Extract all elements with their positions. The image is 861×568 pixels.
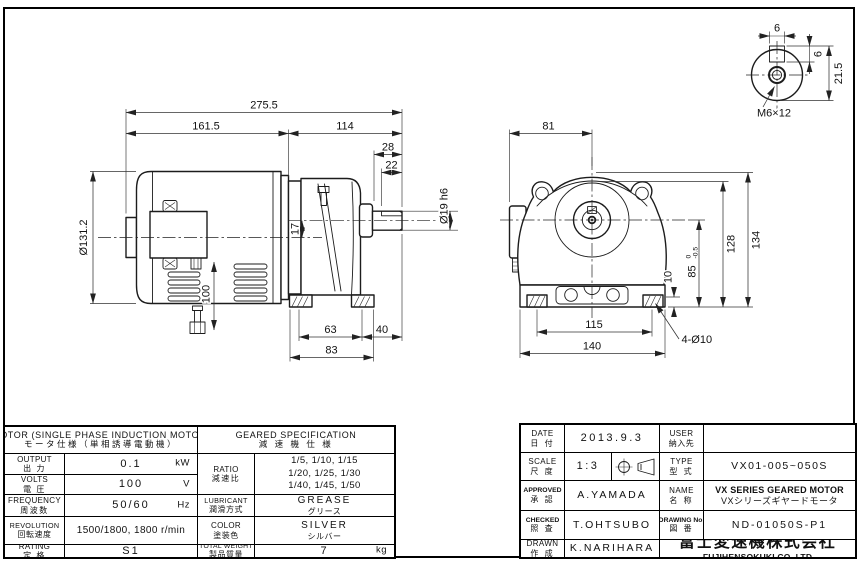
dim-base-length: 83 [325, 345, 337, 357]
checked-label: CHECKED 照 査 [521, 510, 564, 539]
approved-label-en: APPROVED [523, 487, 561, 495]
date-label-en: DATE [531, 429, 553, 438]
color-value-en: SILVER [301, 520, 348, 532]
spec-label-revolution: REVOLUTION 回転速度 [5, 516, 64, 544]
projection-symbol-cell [611, 452, 659, 480]
drawn-value: K.NARIHARA [570, 542, 654, 554]
dim-key-top: 21.5 [833, 63, 845, 84]
output-value: 0.1 [120, 458, 141, 471]
third-angle-projection-icon [614, 455, 658, 479]
drawing-no-value: ND-01050S-P1 [732, 519, 827, 531]
volts-unit: V [183, 479, 190, 490]
frequency-unit: Hz [177, 500, 190, 511]
lubricant-label-en: LUBRICANT [204, 497, 247, 505]
geared-spec-header: GEARED SPECIFICATION 減 速 機 仕 様 [197, 427, 394, 453]
gearbox-outline [290, 179, 375, 308]
user-label: USER 納入先 [659, 425, 703, 452]
spec-label-color: COLOR 塗装色 [197, 516, 254, 544]
motor-spec-header: MOTOR (SINGLE PHASE INDUCTION MOTOR) モータ… [5, 427, 197, 453]
spec-label-lubricant: LUBRICANT 潤滑方式 [197, 494, 254, 516]
company-name-jp: 富士変速機株式会社 [679, 539, 837, 553]
rating-label-en: RATING [19, 544, 50, 551]
drawing-no-value-cell: ND-01050S-P1 [703, 510, 855, 539]
revolution-label-en: REVOLUTION [10, 522, 60, 530]
dim-shaft-height: 85 [687, 265, 699, 277]
dim-key-height: 6 [813, 51, 825, 57]
spec-value-frequency: 50/60 Hz [64, 494, 197, 516]
dim-foot-pitch-side: 63 [324, 324, 336, 336]
dim-motor-dia: Ø131.2 [78, 219, 90, 255]
dim-tap-hole: M6×12 [757, 108, 791, 120]
dim-shaft-dia: Ø19 h6 [439, 188, 451, 224]
checked-value: T.OHTSUBO [573, 519, 651, 531]
spec-table: MOTOR (SINGLE PHASE INDUCTION MOTOR) モータ… [3, 425, 396, 559]
spec-label-output: OUTPUT 出 力 [5, 453, 64, 474]
dim-mount-holes: 4-Ø10 [682, 334, 713, 346]
side-view: 275.5 161.5 114 28 22 Ø131.2 Ø19 h6 17 1… [78, 100, 458, 362]
name-label: NAME 名 称 [659, 480, 703, 510]
spec-value-weight: 7 kg [254, 544, 394, 557]
dim-shaft-height-tol-lower: -0.5 [693, 247, 700, 259]
spec-label-ratio: RATIO 減速比 [197, 453, 254, 494]
scale-label-en: SCALE [528, 457, 556, 466]
spec-value-lubricant: GREASE グリース [254, 494, 394, 516]
ratio-line-2: 1/20, 1/25, 1/30 [288, 468, 360, 481]
lubricant-value-en: GREASE [298, 495, 352, 507]
name-value-cell: VX SERIES GEARED MOTOR VXシリーズギヤードモータ [703, 480, 855, 510]
revolution-label-jp: 回転速度 [18, 530, 52, 539]
output-label-en: OUTPUT [17, 455, 52, 464]
spec-value-output: 0.1 kW [64, 453, 197, 474]
date-label: DATE 日 付 [521, 425, 564, 452]
ratio-line-3: 1/40, 1/45, 1/50 [288, 480, 360, 493]
type-label-en: TYPE [670, 457, 693, 466]
name-label-en: NAME [669, 486, 694, 495]
name-label-jp: 名 称 [669, 496, 693, 505]
dim-overall-height: 134 [751, 231, 763, 249]
color-value-jp: シルバー [308, 532, 342, 541]
output-label-jp: 出 力 [23, 464, 46, 473]
spec-label-volts: VOLTS 電 圧 [5, 474, 64, 494]
approved-label: APPROVED 承 認 [521, 480, 564, 510]
rating-value: S1 [122, 545, 139, 557]
checked-value-cell: T.OHTSUBO [564, 510, 659, 539]
dim-body-height: 128 [726, 235, 738, 253]
company-name-en: FUJIHENSOKUKI CO.,LTD [703, 553, 812, 557]
spec-label-rating: RATING 定 格 [5, 544, 64, 557]
date-label-jp: 日 付 [530, 439, 554, 448]
scale-label: SCALE 尺 度 [521, 452, 564, 480]
dim-box-to-center: 81 [542, 121, 554, 133]
frequency-label-jp: 周波数 [20, 506, 49, 515]
lubricant-value-jp: グリース [308, 507, 342, 516]
date-value: 2013.9.3 [581, 432, 644, 445]
output-unit: kW [175, 459, 190, 470]
dim-overall-length: 275.5 [250, 100, 278, 112]
frequency-value: 50/60 [112, 499, 150, 512]
dim-gearbox-length: 114 [336, 121, 354, 133]
approved-label-jp: 承 認 [530, 495, 554, 504]
checked-label-jp: 照 査 [530, 524, 554, 533]
front-view: 81 134 128 85 0 -0.5 10 115 140 4-Ø10 [500, 121, 763, 359]
dim-motor-length: 161.5 [192, 121, 220, 133]
type-value: VX01-005~050S [731, 460, 828, 472]
motor-spec-title-jp: モータ仕様（単相誘導電動機） [24, 440, 178, 450]
approved-value-cell: A.YAMADA [564, 480, 659, 510]
ratio-line-1: 1/5, 1/10, 1/15 [291, 455, 358, 468]
spec-label-frequency: FREQUENCY 周波数 [5, 494, 64, 516]
dim-pad-height: 10 [663, 271, 675, 283]
weight-label-jp: 製品質量 [209, 550, 243, 557]
drawing-no-label: DRAWING No. 図 番 [659, 510, 703, 539]
drawing-no-label-jp: 図 番 [669, 524, 693, 533]
spec-value-rating: S1 [64, 544, 197, 557]
type-value-cell: VX01-005~050S [703, 452, 855, 480]
title-block: DATE 日 付 2013.9.3 USER 納入先 SCALE 尺 度 1:3 [519, 423, 857, 559]
name-value-en: VX SERIES GEARED MOTOR [715, 485, 844, 495]
company-cell: 富士変速機株式会社 FUJIHENSOKUKI CO.,LTD [659, 539, 855, 557]
dim-lead-length: 100 [201, 285, 213, 303]
dim-foot-pitch-front: 115 [585, 319, 603, 331]
dim-axis-offset: 17 [290, 223, 302, 235]
revolution-value: 1500/1800, 1800 r/min [77, 525, 185, 537]
volts-label-jp: 電 圧 [23, 485, 46, 494]
type-label: TYPE 型 式 [659, 452, 703, 480]
volts-label-en: VOLTS [21, 475, 48, 484]
drawn-label: DRAWN 作 成 [521, 539, 564, 557]
user-value-cell [703, 425, 855, 452]
approved-value: A.YAMADA [577, 489, 646, 501]
dim-key-width: 6 [774, 23, 780, 35]
earth-bolt [190, 306, 205, 334]
shaft-detail-view: 6 6 21.5 M6×12 [746, 23, 845, 120]
mounting-base [520, 285, 665, 307]
spec-value-color: SILVER シルバー [254, 516, 394, 544]
user-label-jp: 納入先 [669, 439, 695, 448]
color-label-en: COLOR [211, 521, 241, 530]
geared-spec-title-jp: 減 速 機 仕 様 [259, 440, 333, 450]
ratio-label-en: RATIO [213, 465, 238, 474]
ratio-label-jp: 減速比 [212, 474, 241, 483]
user-label-en: USER [670, 429, 694, 438]
dim-foot-to-shaft-end: 40 [376, 324, 388, 336]
dim-shaft-height-tol-upper: 0 [686, 255, 693, 259]
frequency-label-en: FREQUENCY [8, 496, 61, 505]
dim-shaft-height-group: 85 0 -0.5 [686, 247, 700, 278]
dim-base-width: 140 [583, 341, 601, 353]
date-value-cell: 2013.9.3 [564, 425, 659, 452]
spec-value-revolution: 1500/1800, 1800 r/min [64, 516, 197, 544]
drawing-sheet: 275.5 161.5 114 28 22 Ø131.2 Ø19 h6 17 1… [0, 0, 861, 568]
rating-label-jp: 定 格 [23, 551, 46, 557]
color-label-jp: 塗装色 [213, 531, 239, 540]
dim-key-length: 22 [385, 160, 397, 172]
spec-value-volts: 100 V [64, 474, 197, 494]
volts-value: 100 [119, 478, 143, 491]
drawn-value-cell: K.NARIHARA [564, 539, 659, 557]
name-value-jp: VXシリーズギヤードモータ [721, 496, 838, 506]
scale-value: 1:3 [577, 460, 600, 473]
scale-label-jp: 尺 度 [530, 467, 554, 476]
spec-value-ratio: 1/5, 1/10, 1/15 1/20, 1/25, 1/30 1/40, 1… [254, 453, 394, 494]
scale-value-cell: 1:3 [564, 452, 611, 480]
weight-unit: kg [376, 546, 387, 557]
drawn-label-en: DRAWN [527, 539, 559, 548]
drawn-label-jp: 作 成 [530, 549, 554, 558]
dim-shaft-projection: 28 [382, 142, 394, 154]
spec-label-weight: TOTAL WEIGHT 製品質量 [197, 544, 254, 557]
lubricant-label-jp: 潤滑方式 [209, 505, 243, 514]
weight-value: 7 [320, 545, 328, 557]
type-label-jp: 型 式 [669, 467, 693, 476]
